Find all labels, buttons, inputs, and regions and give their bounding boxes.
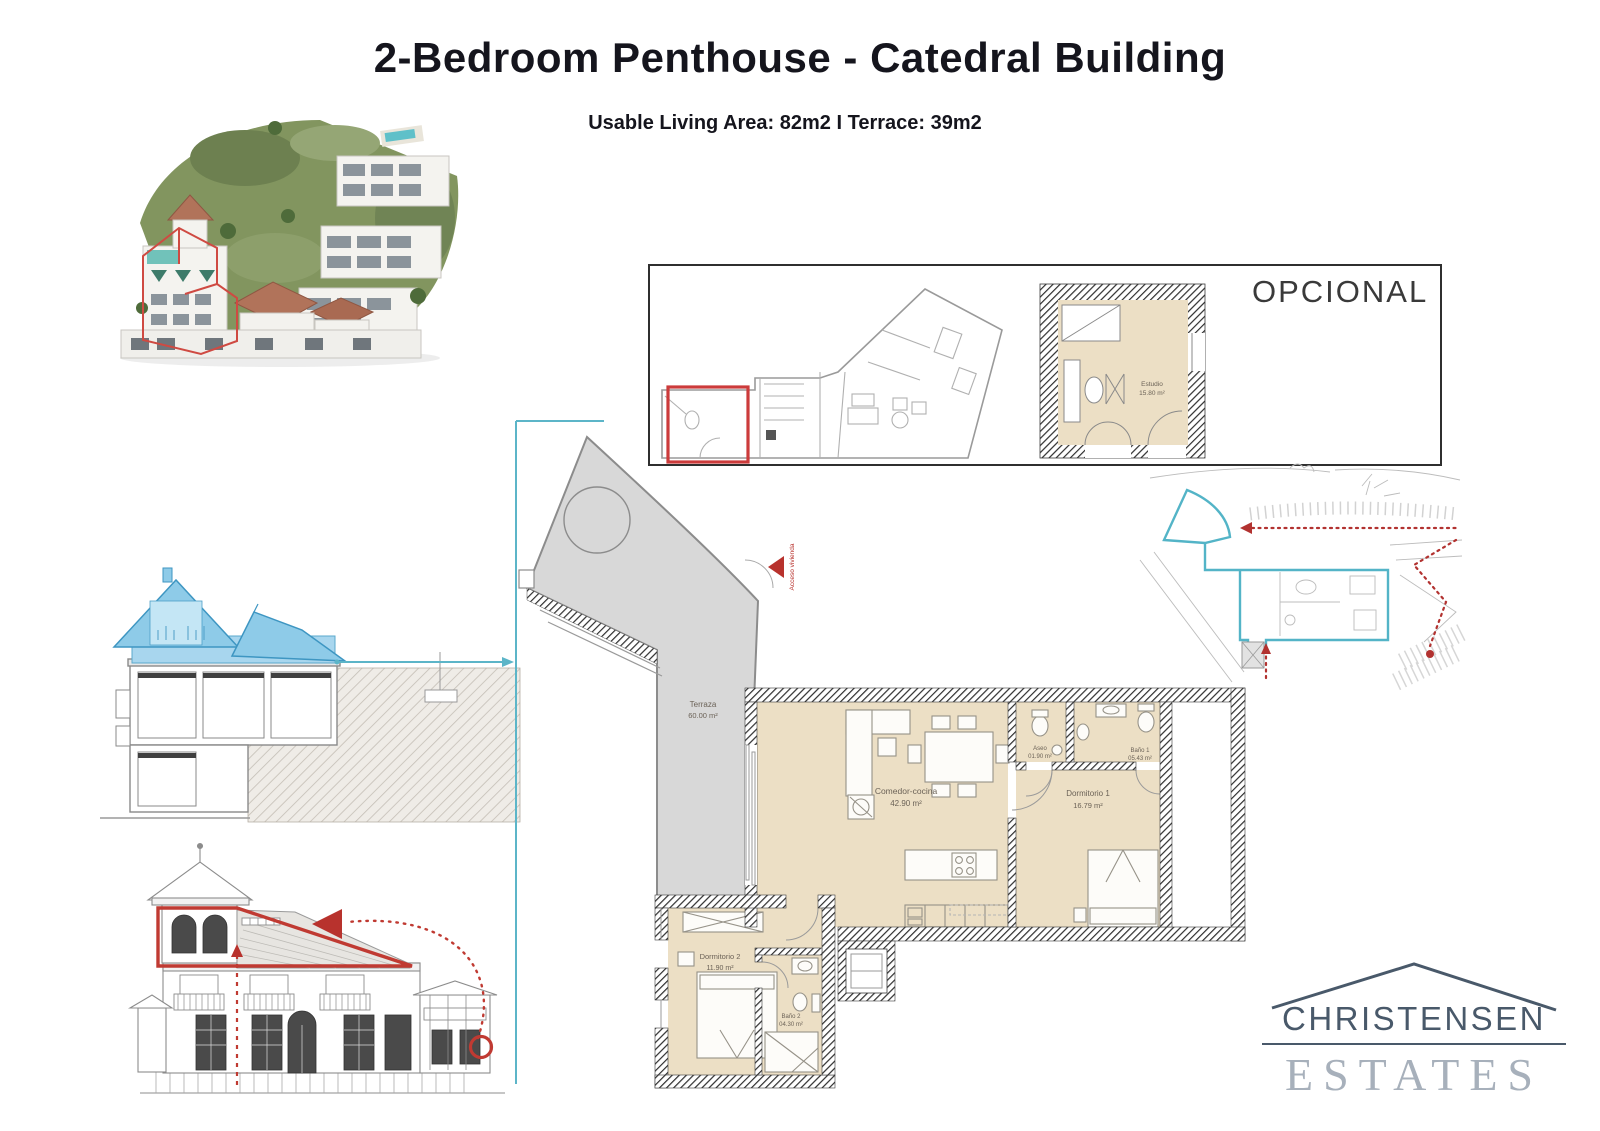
room-label-bano2-name: Baño 2 <box>781 1014 801 1020</box>
penthouse-highlight <box>114 568 345 663</box>
aerial-site-rendering <box>85 98 480 373</box>
site-plan-sketch <box>1128 462 1468 687</box>
room-label-terraza-area: 60.00 m² <box>688 711 718 720</box>
room-label-dorm1-name: Dormitorio 1 <box>1066 789 1110 798</box>
elevation-drawing <box>125 840 520 1115</box>
optional-panel-label: OPCIONAL <box>1252 274 1428 310</box>
logo-name: CHRISTENSEN <box>1262 1000 1566 1038</box>
room-label-dorm2-name: Dormitorio 2 <box>700 952 741 961</box>
room-label-dorm2-area: 11.90 m² <box>706 965 734 972</box>
logo-divider <box>1262 1043 1566 1045</box>
brochure-page: 2-Bedroom Penthouse - Catedral Building … <box>0 0 1600 1131</box>
room-label-bano1-area: 05.43 m² <box>1128 756 1152 762</box>
path-arrow-left-icon <box>1240 522 1252 534</box>
section-drawing <box>95 555 525 825</box>
room-label-comedor-area: 42.90 m² <box>890 799 922 808</box>
entry-label: Acceso vivienda <box>789 543 796 590</box>
room-label-aseo-area: 01.90 m² <box>1028 754 1052 760</box>
room-label-dorm1-area: 16.79 m² <box>1073 801 1103 810</box>
room-label-aseo-name: Aseo <box>1033 746 1047 752</box>
room-label-bano2-area: 04.30 m² <box>779 1022 803 1028</box>
brand-logo: CHRISTENSEN ESTATES <box>1262 950 1566 1101</box>
page-title: 2-Bedroom Penthouse - Catedral Building <box>0 34 1600 82</box>
path-end-dot <box>1426 650 1434 658</box>
logo-estates: ESTATES <box>1262 1048 1566 1101</box>
entry-arrow-icon <box>768 556 784 578</box>
room-label-comedor-name: Comedor-cocina <box>875 786 938 796</box>
access-path-red <box>1252 528 1456 678</box>
room-label-terraza-name: Terraza <box>690 700 717 709</box>
terrace-area <box>519 437 758 905</box>
room-label-bano1-name: Baño 1 <box>1130 748 1150 754</box>
